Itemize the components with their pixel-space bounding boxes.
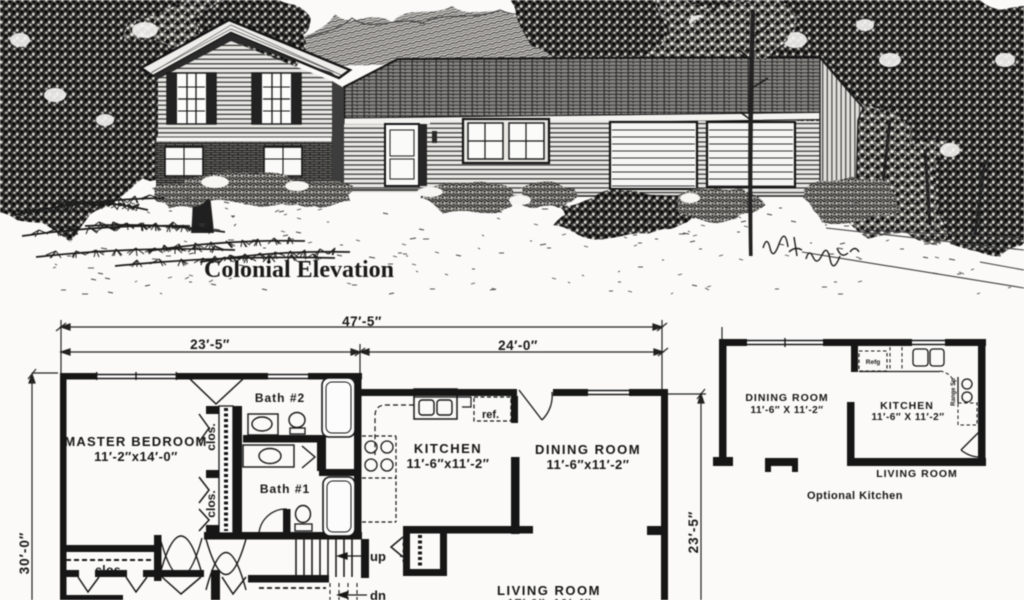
svg-text:Colonial Elevation: Colonial Elevation (204, 257, 394, 283)
svg-text:KITCHEN: KITCHEN (414, 441, 482, 456)
svg-text:Bath #2: Bath #2 (255, 391, 305, 405)
svg-text:47′-5″: 47′-5″ (342, 314, 382, 329)
svg-text:dn: dn (370, 588, 386, 600)
svg-text:ref.: ref. (482, 409, 499, 421)
svg-text:24′-0″: 24′-0″ (498, 338, 538, 353)
svg-text:LIVING ROOM: LIVING ROOM (876, 468, 958, 480)
svg-text:Refg: Refg (866, 359, 880, 366)
svg-text:11′-6″x11′-2″: 11′-6″x11′-2″ (406, 456, 489, 471)
svg-text:DINING ROOM: DINING ROOM (745, 392, 828, 404)
svg-text:DINING ROOM: DINING ROOM (535, 442, 641, 457)
svg-text:Optional Kitchen: Optional Kitchen (807, 490, 903, 502)
svg-text:up: up (370, 549, 386, 564)
svg-text:clos.: clos. (204, 490, 218, 517)
svg-text:11′-2″x14′-0″: 11′-2″x14′-0″ (94, 449, 178, 464)
svg-text:30′-0″: 30′-0″ (17, 532, 32, 575)
svg-text:23′-5″: 23′-5″ (686, 511, 701, 554)
svg-text:11′-6″x11′-2″: 11′-6″x11′-2″ (546, 457, 629, 472)
svg-text:Range Sp: Range Sp (951, 378, 957, 406)
svg-text:clos.: clos. (95, 563, 125, 577)
svg-text:17′-0″x19′-4″: 17′-0″x19′-4″ (507, 596, 591, 600)
svg-text:clos.: clos. (400, 538, 412, 564)
svg-text:clos.: clos. (204, 423, 218, 450)
svg-text:11′-6″ X 11′-2″: 11′-6″ X 11′-2″ (750, 405, 823, 416)
svg-text:MASTER BEDROOM: MASTER BEDROOM (64, 434, 207, 449)
svg-text:23′-5″: 23′-5″ (190, 337, 230, 352)
svg-text:Bath #1: Bath #1 (260, 482, 310, 496)
svg-text:KITCHEN: KITCHEN (880, 400, 934, 412)
svg-text:11′-6″ X 11′-2″: 11′-6″ X 11′-2″ (871, 412, 944, 423)
